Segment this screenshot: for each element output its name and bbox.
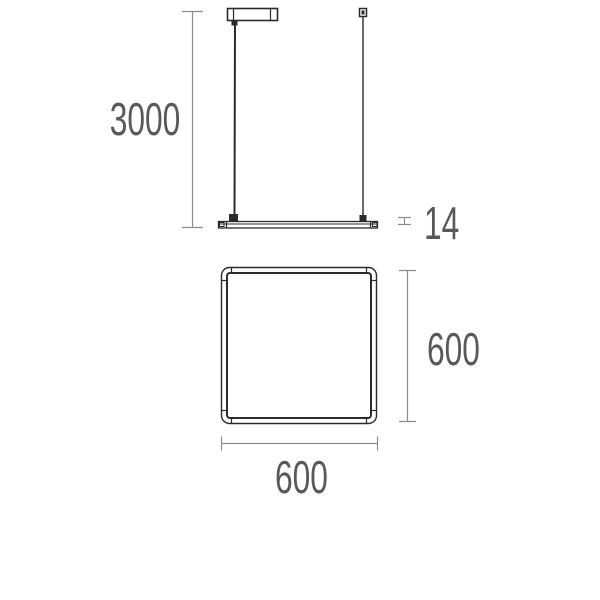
frame-width-label: 600	[275, 454, 328, 500]
suspension-wire-left	[229, 21, 238, 222]
dimension-drawing-canvas: 3000 14 600 600	[0, 0, 600, 600]
frame-height-dimension-line	[399, 271, 416, 422]
pendant-drawing	[0, 0, 600, 600]
wire-bottom-connector-left	[229, 214, 238, 221]
square-frame	[222, 268, 378, 424]
wire-bottom-connector-right	[360, 215, 367, 221]
frame-height-label: 600	[427, 326, 480, 372]
frame-outer-edge	[222, 268, 377, 424]
wire-top-connector-left	[232, 21, 238, 26]
ceiling-canopy	[228, 9, 278, 21]
plan-view	[222, 268, 417, 451]
luminaire-profile-bar	[219, 222, 378, 229]
suspension-height-dimension-line	[182, 12, 203, 228]
suspension-height-label: 3000	[109, 96, 180, 142]
profile-thickness-label: 14	[424, 200, 459, 246]
profile-thickness-dimension-marker	[398, 218, 411, 225]
side-elevation-view	[182, 9, 411, 229]
suspension-wire-right	[360, 9, 367, 222]
frame-width-dimension-line	[222, 437, 378, 451]
